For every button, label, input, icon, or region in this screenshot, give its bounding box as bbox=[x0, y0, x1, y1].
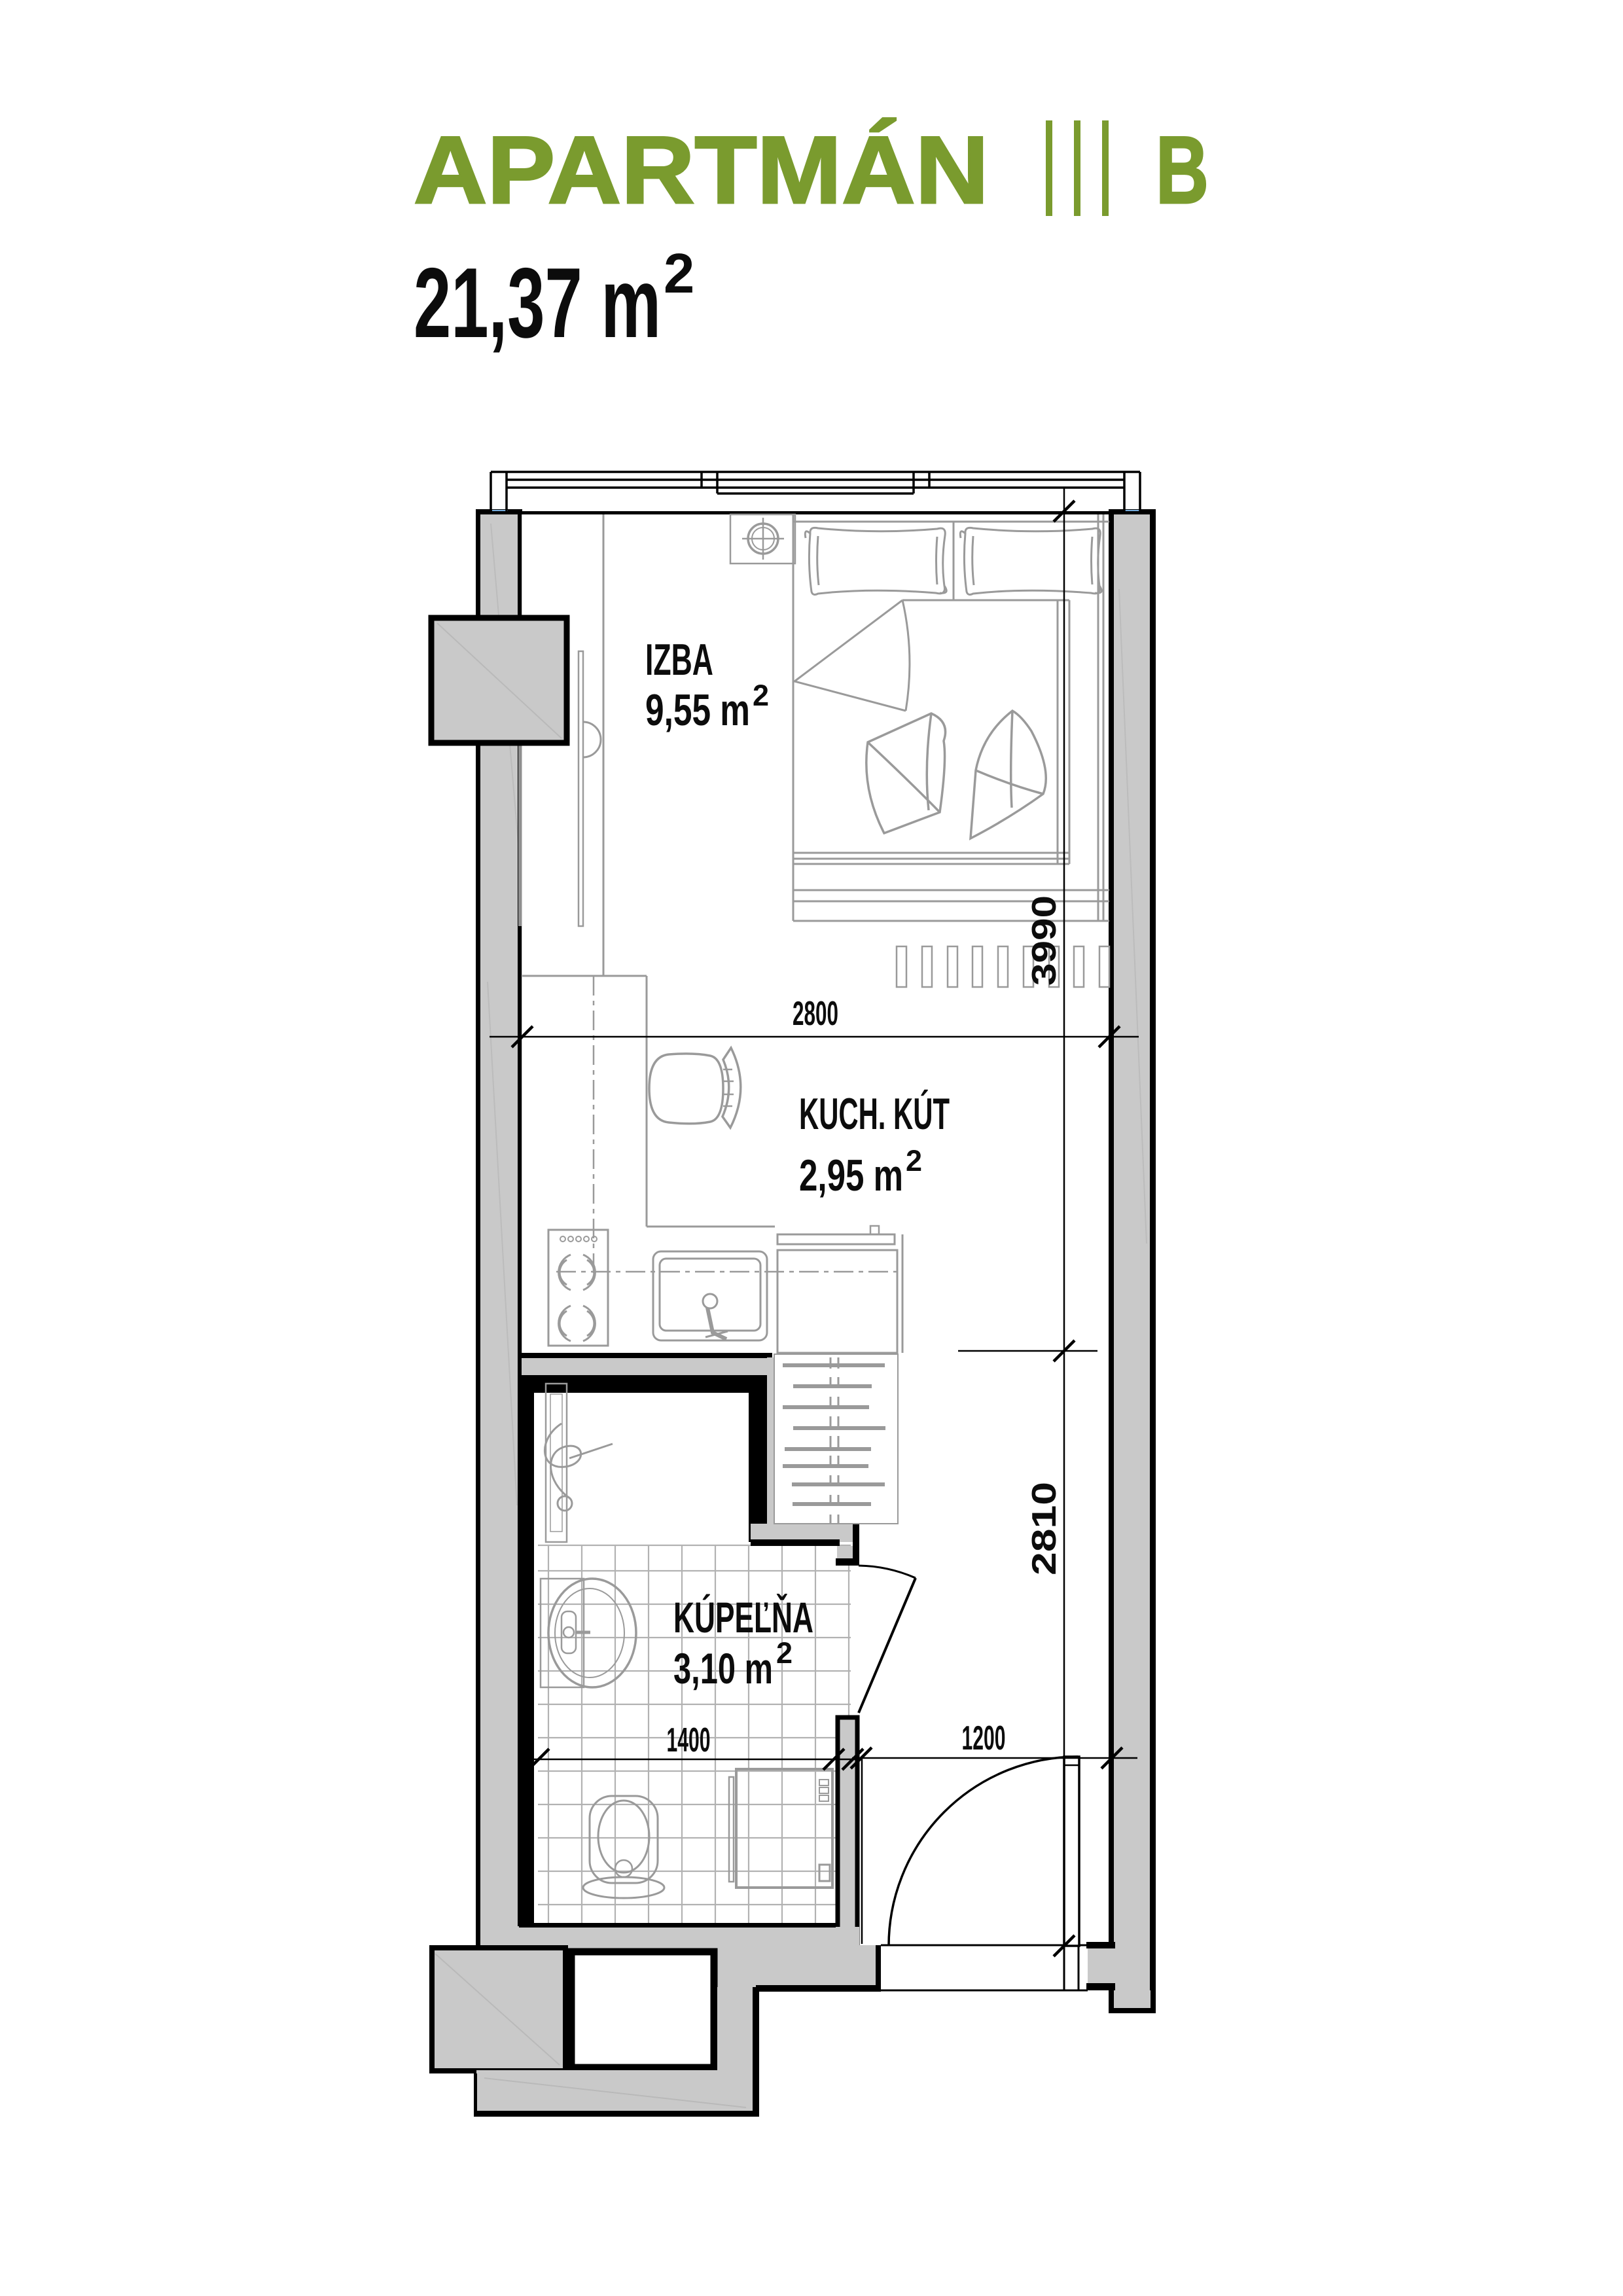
svg-text:2810: 2810 bbox=[1026, 1482, 1063, 1575]
svg-text:APARTMÁN: APARTMÁN bbox=[414, 117, 989, 223]
svg-text:KUCH. KÚT: KUCH. KÚT bbox=[799, 1089, 950, 1139]
svg-text:3,10 m: 3,10 m bbox=[673, 1644, 773, 1693]
svg-text:2800: 2800 bbox=[793, 995, 838, 1033]
svg-text:B: B bbox=[1156, 117, 1209, 223]
svg-text:2,95 m: 2,95 m bbox=[799, 1151, 903, 1200]
svg-text:2: 2 bbox=[906, 1144, 922, 1177]
svg-text:2: 2 bbox=[776, 1636, 793, 1670]
svg-text:21,37 m: 21,37 m bbox=[414, 247, 661, 359]
svg-text:1200: 1200 bbox=[962, 1719, 1006, 1757]
svg-text:KÚPEĽŇA: KÚPEĽŇA bbox=[673, 1593, 813, 1641]
svg-text:9,55 m: 9,55 m bbox=[645, 685, 750, 735]
svg-text:1400: 1400 bbox=[667, 1721, 711, 1759]
svg-text:IZBA: IZBA bbox=[645, 635, 713, 685]
svg-text:2: 2 bbox=[753, 679, 769, 712]
svg-text:3990: 3990 bbox=[1026, 895, 1063, 986]
svg-text:2: 2 bbox=[664, 243, 694, 305]
